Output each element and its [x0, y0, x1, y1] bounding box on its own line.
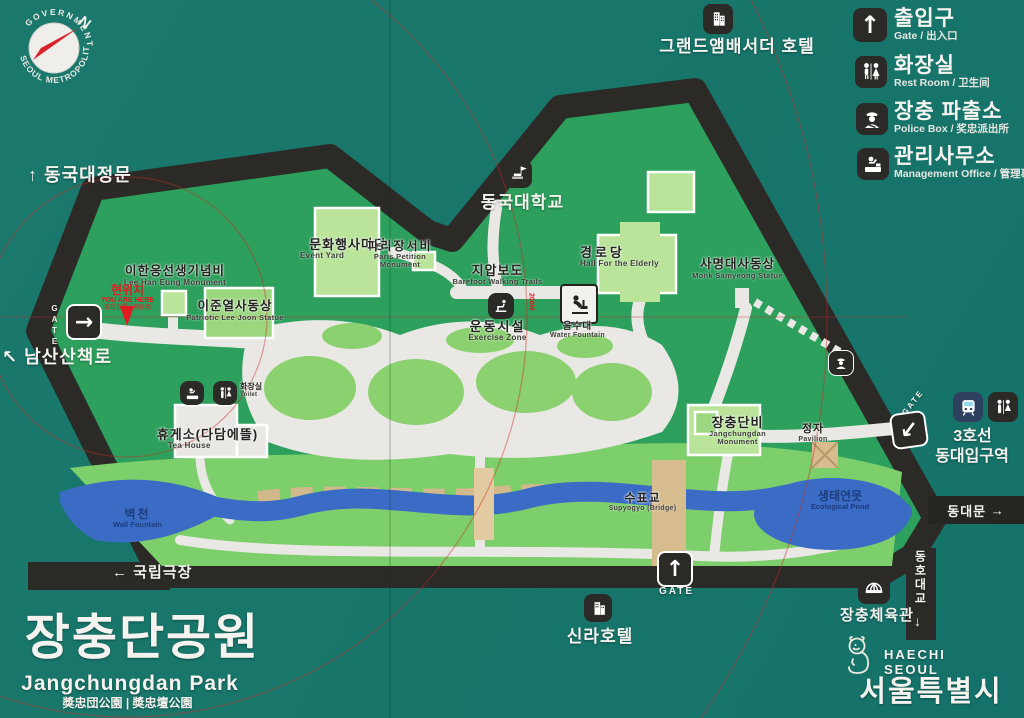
gate-left-text: GATE: [50, 304, 59, 348]
water-fountain-label: 음수대 Water Fountain: [535, 322, 620, 340]
legend-police: 장충 파출소Police Box / 奖忠派出所: [894, 101, 1009, 135]
tea-house-restroom-icon: [213, 381, 237, 405]
shilla-hotel-icon: [584, 594, 612, 622]
park-title-kr: 장충단공원: [20, 612, 265, 665]
grand-ambassador-hotel-label: 그랜드앰배서더 호텔: [617, 38, 857, 56]
subway-line-label: 3호선: [925, 428, 1020, 445]
arrow-upleft-icon: ↖: [2, 347, 18, 367]
tea-house-office-icon: [180, 381, 204, 405]
legend-restroom: 화장실Rest Room / 卫生间: [894, 55, 990, 89]
legend-gate: 출입구Gate / 出入口: [894, 8, 958, 42]
jangchungdan-monument-label: 장충단비 Jangchungdan Monument: [680, 416, 795, 446]
park-title-en: Jangchungdan Park: [20, 673, 240, 696]
namsan-trail-label: ↖ 남산산책로: [2, 348, 112, 367]
lee-joon-statue-label: 이준열사동상 Patriotic Lee Joon Statue: [175, 300, 295, 322]
gymnasium-label: 장충체육관: [812, 608, 942, 624]
gymnasium-icon: [858, 572, 890, 604]
restroom-icon: [855, 56, 887, 88]
subway-station-label: 동대입구역: [922, 448, 1022, 465]
arrow-right-icon: →: [991, 503, 1005, 518]
water-fountain-icon: [560, 284, 598, 324]
park-title-cn: 奬忠団公園 | 奬忠壇公園: [20, 697, 235, 710]
office-icon: [857, 148, 889, 180]
supyogyo-label: 수표교 Supyogyo (Bridge): [595, 492, 690, 513]
national-theater-label: ← 국립극장: [112, 565, 192, 581]
park-map-sign: GOVERNMENT SEOUL METROPOLITAN N ↑ 출입구Gat…: [0, 0, 1024, 718]
dongho-bridge-label: 동호대교: [913, 550, 926, 606]
subway-icon: [953, 392, 983, 422]
haechi-text-2: SEOUL: [884, 663, 939, 677]
eco-pond-label: 생태연못 Ecological Pond: [790, 490, 890, 511]
haechi-mascot-icon: [843, 635, 881, 677]
dongguk-univ-label: 동국대학교: [460, 194, 585, 212]
barefoot-trail-label: 지압보도 Barefoot Walking Trails: [440, 264, 555, 286]
wall-fountain-label: 벽천 Wall Fountain: [95, 508, 180, 529]
tea-house-label: 휴게소(다담에뜰) Tea House: [140, 428, 275, 451]
police-icon: [856, 103, 888, 135]
paris-monument-label: 파리장서비 Paris Petition Monument: [350, 240, 450, 269]
legend-office: 관리사무소Management Office / 管理事务所: [894, 146, 1024, 180]
you-are-here-marker: [118, 305, 136, 327]
pavilion-symbol: [812, 442, 838, 468]
dongguk-gate-label: ↑ 동국대정문: [28, 166, 132, 185]
gate-bottom-icon: ↑: [657, 551, 693, 587]
gate-arrow-icon: ↑: [853, 8, 887, 42]
pavilion-label: 정자 Pavilion: [782, 424, 844, 443]
samyeong-statue-label: 사명대사동상 Monk Samyeong Statue: [675, 258, 800, 280]
arrow-left-icon: ←: [112, 564, 128, 581]
arrow-up-icon: ↑: [28, 165, 38, 185]
exercise-icon: [488, 293, 514, 319]
haechi-text-1: HAECHI: [884, 648, 946, 662]
subway-restroom-icon: [988, 392, 1018, 422]
dongdaemun-band: 동대문 →: [928, 496, 1024, 524]
police-box-map-icon: [828, 350, 854, 376]
toilet-small-label: 화장실 Toilet: [240, 383, 262, 398]
shilla-hotel-label: 신라호텔: [540, 628, 660, 646]
distance-200m-label: 200M: [527, 293, 535, 311]
hotel-icon: [703, 4, 733, 34]
compass-rose-icon: GOVERNMENT SEOUL METROPOLITAN N: [8, 2, 96, 90]
city-name-label: 서울특별시: [840, 677, 1022, 708]
university-flag-icon: [504, 160, 532, 188]
gate-right-icon: ↙: [889, 410, 930, 451]
gate-bottom-text: GATE: [659, 586, 694, 597]
